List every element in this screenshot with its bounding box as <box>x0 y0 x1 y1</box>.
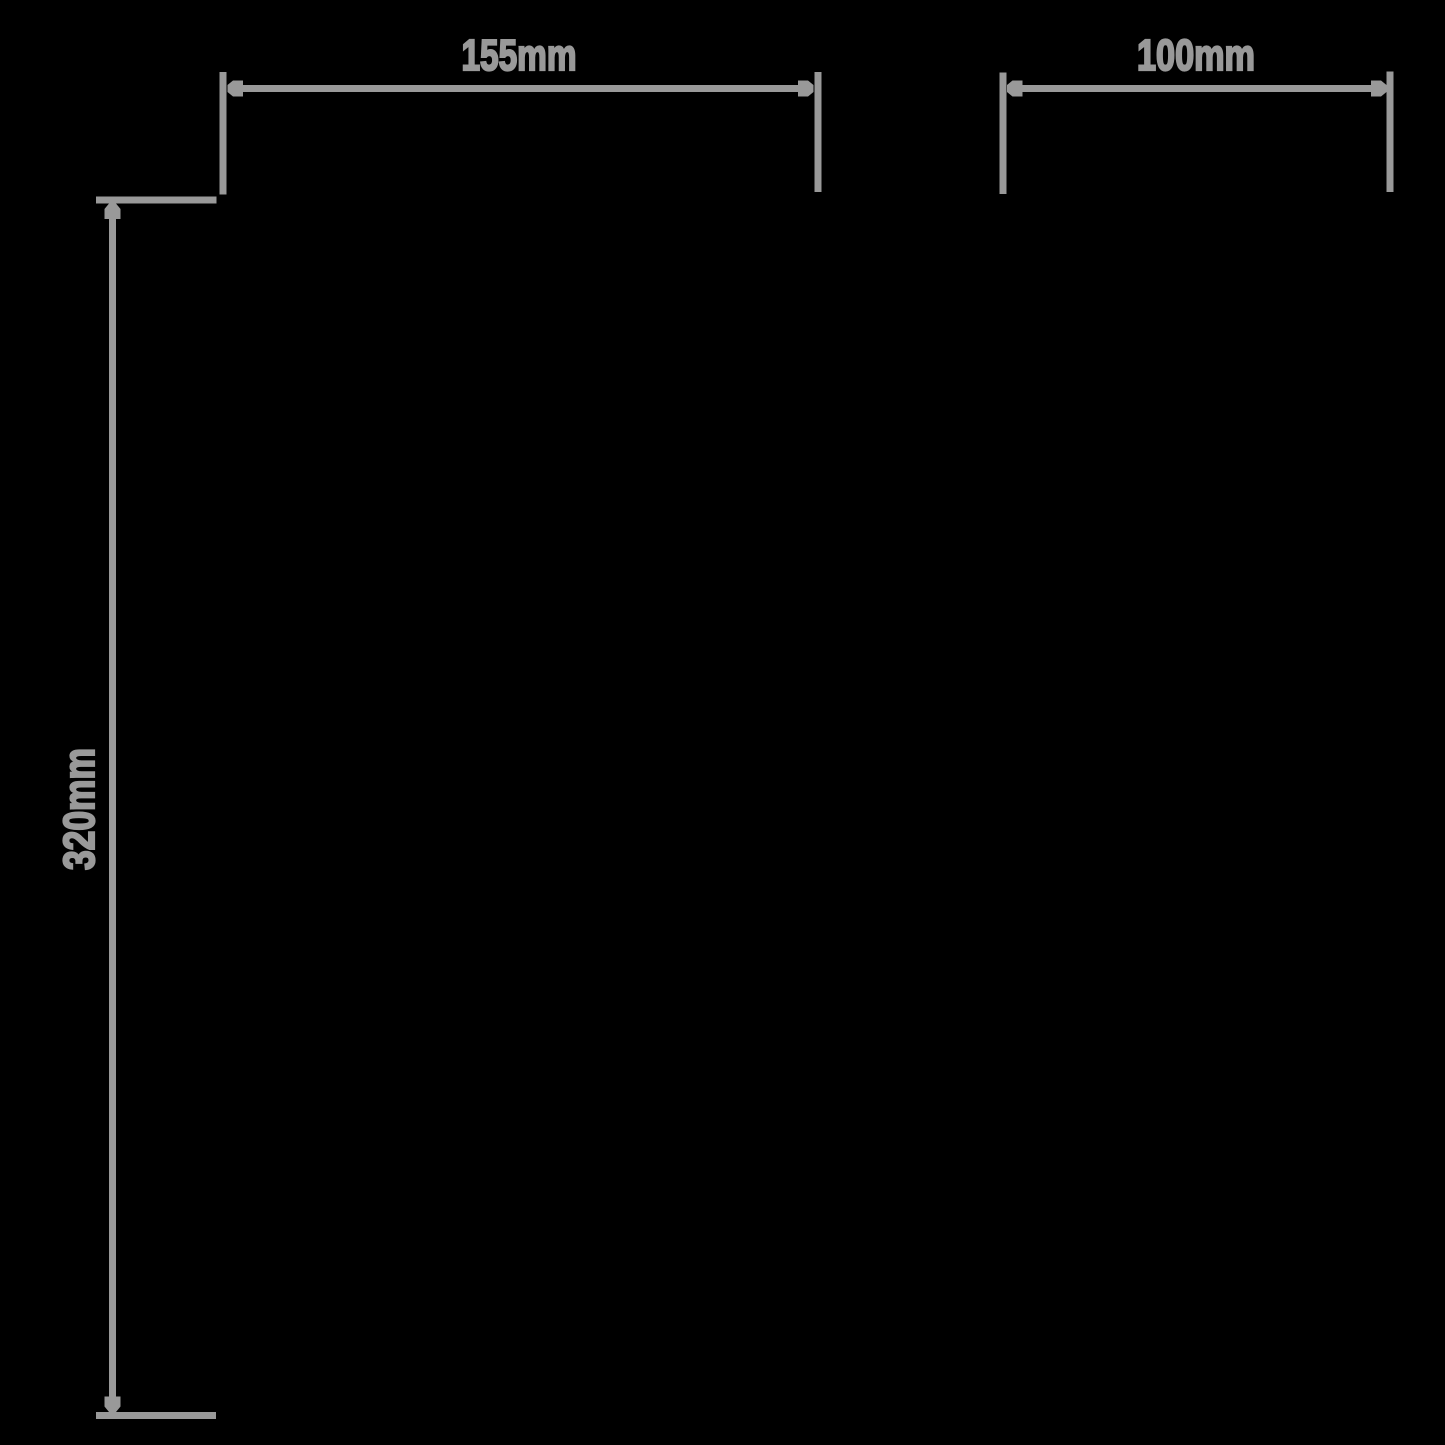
svg-text:320mm: 320mm <box>55 748 104 870</box>
svg-text:100mm: 100mm <box>1137 31 1255 80</box>
svg-text:155mm: 155mm <box>462 31 577 80</box>
